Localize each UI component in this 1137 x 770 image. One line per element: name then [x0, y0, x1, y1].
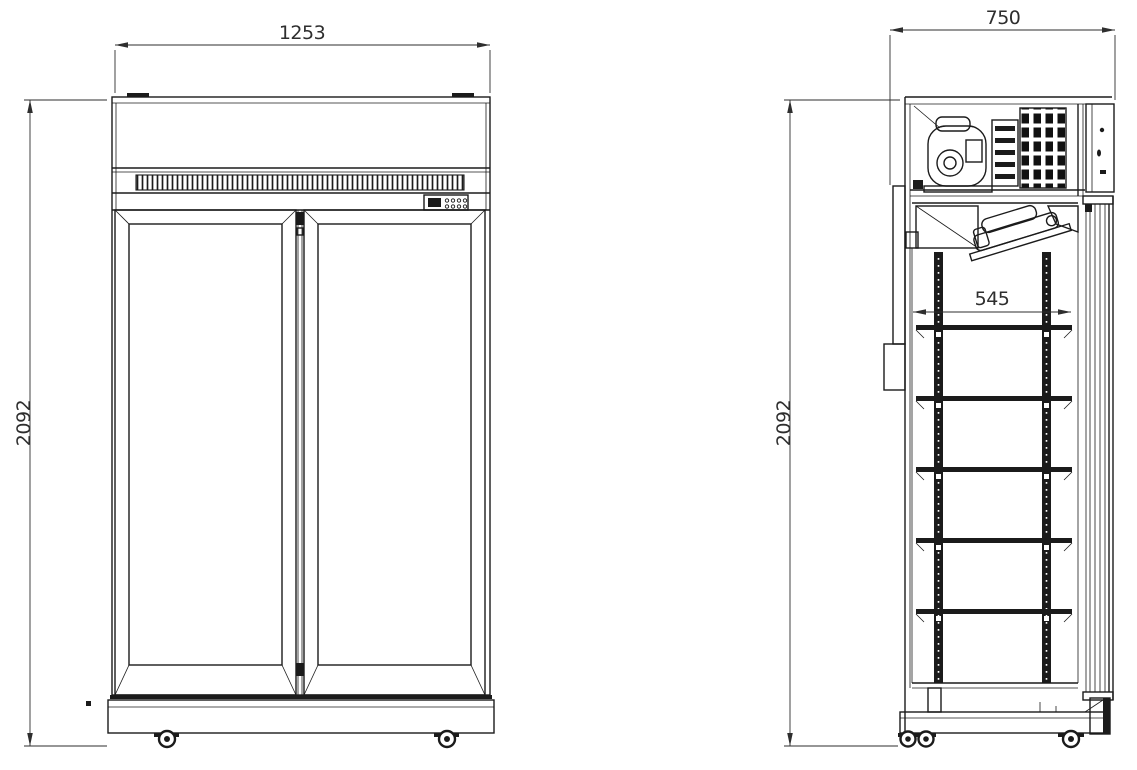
rear-spacer: [893, 186, 905, 344]
glass-door-side: [1083, 196, 1113, 700]
front-view: 1253 2092: [13, 22, 494, 747]
control-panel: [424, 195, 468, 210]
base-frame: [900, 712, 1105, 733]
caster-front-left: [154, 731, 179, 747]
fridge-dimension-drawing: 1253 2092: [0, 0, 1137, 770]
fan-motor-unit: [992, 120, 1018, 186]
left-door: [115, 210, 296, 695]
front-width-dimension: 1253: [115, 22, 490, 93]
rear-junction-box: [884, 344, 905, 390]
caster-side-rear: [898, 732, 936, 747]
shelf-depth-label: 545: [975, 288, 1010, 310]
temperature-display: [428, 198, 441, 207]
side-height-dimension: 2092: [773, 100, 900, 746]
control-buttons: [445, 199, 466, 208]
front-width-label: 1253: [279, 22, 325, 44]
base-front: [86, 695, 494, 747]
door-bottom-bracket: [1090, 698, 1110, 734]
side-depth-label: 750: [986, 7, 1021, 29]
side-view: 750 2092: [773, 7, 1115, 747]
machine-compartment: [910, 104, 1085, 196]
side-height-label: 2092: [773, 400, 795, 446]
compressor: [913, 117, 992, 192]
door-hinge-top: [296, 212, 304, 225]
caster-front-right: [434, 731, 459, 747]
door-hinge-bottom: [296, 663, 304, 676]
kick-plate: [108, 700, 494, 733]
side-depth-dimension: 750: [890, 7, 1115, 185]
evaporator: [906, 196, 1078, 261]
center-mullion: [296, 210, 304, 695]
support-leg: [928, 688, 941, 712]
top-front-panel: [1086, 104, 1114, 192]
condenser-coil: [1020, 108, 1066, 188]
interior: 545: [912, 232, 1078, 688]
caster-side-front: [1058, 731, 1084, 747]
front-height-dimension: 2092: [13, 100, 107, 746]
ventilation-grille: [136, 175, 464, 190]
right-door: [304, 210, 485, 695]
glass-doors-front: [115, 210, 485, 695]
base-side: [898, 688, 1110, 747]
front-height-label: 2092: [13, 400, 35, 446]
cabinet-front: [112, 93, 490, 695]
technical-drawing-page: 1253 2092: [0, 0, 1137, 770]
